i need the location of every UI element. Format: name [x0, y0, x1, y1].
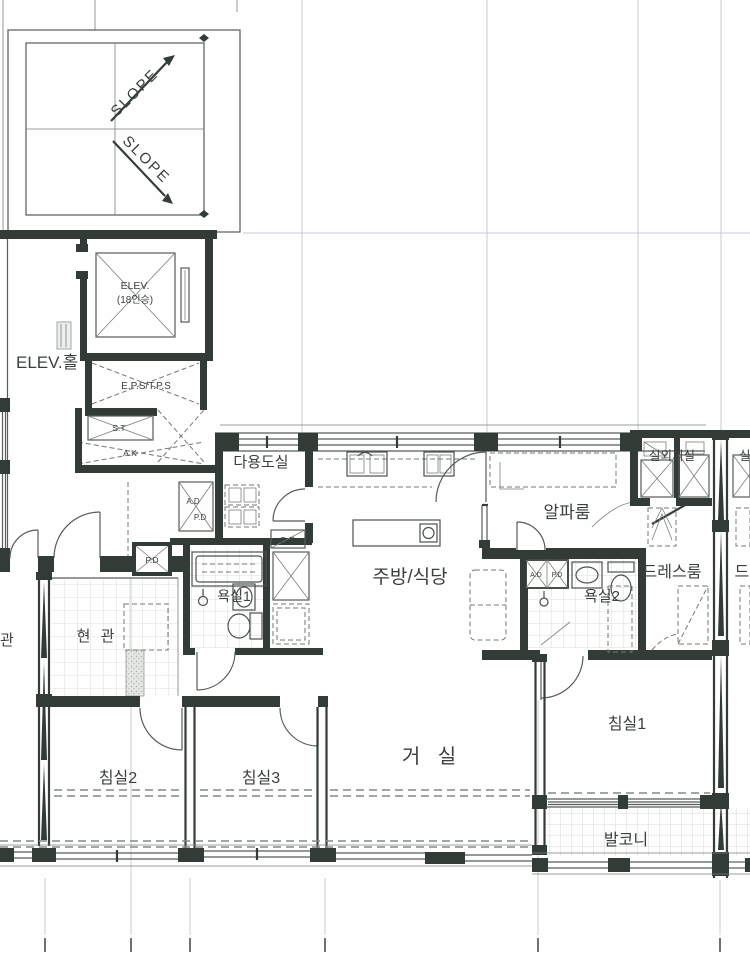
- bedroom2-label: 침실2: [99, 769, 137, 787]
- bedroom3-label: 침실3: [242, 769, 280, 787]
- bed1-balcony-window-wall: [546, 795, 712, 809]
- floor-plan-drawing: SLOPE SLOPE: [0, 0, 750, 955]
- left-wall-windows: [3, 410, 6, 548]
- slope-label-lower: SLOPE: [119, 133, 173, 187]
- bed2-door: [140, 708, 182, 750]
- bath2-ad-label: A.D: [530, 572, 542, 579]
- north-wall: [215, 425, 750, 451]
- elevator-label: ELEV.: [121, 280, 150, 292]
- ramp-area: SLOPE SLOPE: [8, 30, 240, 232]
- elev-hall-label: ELEV.홀: [16, 353, 78, 372]
- bed3-door: [280, 708, 318, 746]
- shaft-column: [273, 552, 309, 644]
- dr-box-label: D.R: [281, 535, 296, 545]
- elevator-hall: [0, 239, 186, 572]
- kitchen-door: [436, 452, 490, 548]
- st-label: S.T: [112, 423, 125, 433]
- washer-fixtures: [225, 485, 259, 527]
- wardrobe-fixture-mirror: [736, 508, 750, 546]
- unit-entry-doors: [10, 512, 100, 558]
- bathroom1-label: 욕실1: [217, 588, 251, 604]
- party-wall-left: [36, 572, 52, 846]
- kitchen-island-fixture: [353, 520, 440, 546]
- bath2-pd-label: P.D: [552, 572, 563, 579]
- party-wall-right: [712, 430, 729, 878]
- elevator-capacity-label: (18인승): [117, 294, 153, 306]
- kitchen-dining-label: 주방/식당: [372, 566, 447, 588]
- floor-plan-page: SLOPE SLOPE: [0, 0, 750, 955]
- shoe-cabinet: [126, 650, 144, 696]
- counter-fixture: [347, 452, 387, 476]
- elevator-core: [0, 230, 217, 473]
- living-room-label: 거 실: [402, 745, 462, 768]
- pd-box-label: P.D: [145, 555, 158, 565]
- corner-marker: [199, 210, 209, 218]
- entrance-label: 현 관: [77, 628, 118, 645]
- outdoor-unit-room-mirror-label: 실외기실: [739, 449, 750, 463]
- wardrobe-fixture-mirror: [740, 586, 750, 644]
- alpha-room-label: 알파룸: [544, 503, 591, 522]
- shaft-ad-label: A.D: [186, 497, 200, 506]
- utility-room-label: 다용도실: [233, 454, 288, 471]
- wardrobe-fixture: [678, 586, 708, 644]
- counter-fixture: [424, 452, 454, 476]
- eps-tps-label: E.P.S/T.P.S: [121, 381, 171, 392]
- grid-tick-marks: [45, 938, 720, 952]
- bedroom1-label: 침실1: [608, 715, 646, 733]
- slope-label-upper: SLOPE: [108, 66, 162, 120]
- entrance-neighbor-label: 관: [0, 632, 14, 649]
- north-windows: [239, 436, 620, 448]
- dress-room-mirror-label: 드레스룸: [735, 563, 750, 581]
- elevator-door-panel: [57, 322, 71, 349]
- refrigerator-fixture: [470, 570, 506, 640]
- adpd-shaft: [179, 482, 213, 531]
- corner-marker: [199, 34, 209, 42]
- ak-label: A.K: [123, 448, 137, 458]
- living-bed1-wall: [532, 654, 547, 855]
- kitchen-dining: [318, 452, 506, 640]
- dress-room-label: 드레스룸: [643, 563, 702, 581]
- balcony-label: 발코니: [604, 831, 648, 849]
- shaft-pd-label: P.D: [194, 513, 207, 522]
- outdoor-unit-room-label: 실외기실: [649, 449, 695, 463]
- bathroom2-label: 욕실2: [584, 588, 620, 605]
